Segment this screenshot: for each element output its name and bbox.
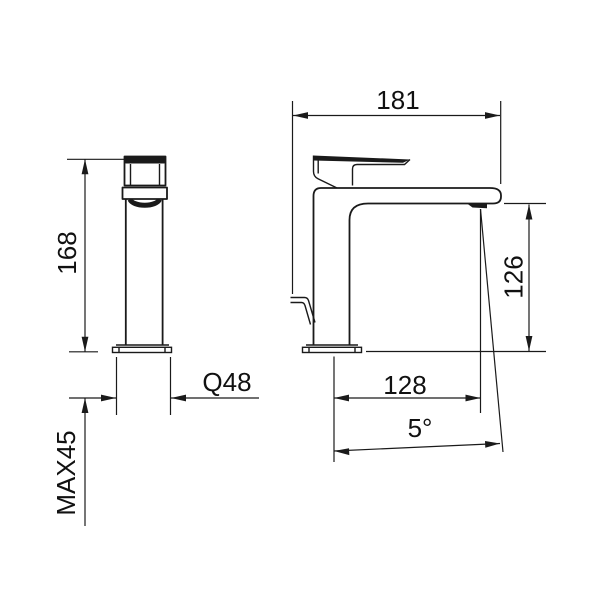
dimension-front-height: 168 <box>52 159 126 351</box>
spray-angle-label: 5° <box>408 413 433 443</box>
height-arrow-up <box>82 159 89 174</box>
height-arrow-down <box>82 337 89 352</box>
front-handle-inner-edges <box>131 164 160 186</box>
side-popup-rod <box>291 298 316 325</box>
spout-height-arrow-up <box>526 205 533 220</box>
faucet-dimension-drawing: 168 Q48 MAX45 181 126 128 <box>0 0 600 600</box>
side-elevation-view <box>291 156 547 353</box>
dimension-spout-height: 126 <box>499 204 547 352</box>
front-body-column <box>126 199 163 345</box>
side-handle-underside <box>353 160 411 186</box>
front-spout-mouth-arc <box>130 200 160 206</box>
front-elevation-view <box>113 156 172 353</box>
overall-depth-label: 181 <box>376 85 419 115</box>
side-base-flange-caps <box>309 347 355 352</box>
spout-reach-arrow-left <box>334 395 349 402</box>
depth-dim-lines <box>293 101 501 294</box>
front-spout-band <box>123 188 168 200</box>
max-thickness-arrow-up <box>82 398 89 413</box>
dimension-spray-angle: 5° <box>334 209 503 455</box>
dimension-base-diameter: Q48 <box>69 357 259 415</box>
spout-reach-label: 128 <box>383 370 426 400</box>
side-base-flange <box>303 347 362 352</box>
side-aerator-tip <box>467 204 487 209</box>
depth-arrow-right <box>485 112 500 119</box>
spout-height-label: 126 <box>499 255 529 298</box>
diameter-arrow-left <box>171 395 186 402</box>
dimension-overall-depth: 181 <box>293 85 501 294</box>
max-thickness-label: MAX45 <box>51 430 81 515</box>
technical-drawing-canvas: 168 Q48 MAX45 181 126 128 <box>0 0 600 600</box>
spray-angle-arrow-right <box>485 441 500 448</box>
depth-arrow-left <box>293 112 308 119</box>
spray-angle-arrow-left <box>334 448 349 455</box>
front-base-flange-caps <box>119 347 165 352</box>
base-diameter-label: Q48 <box>202 367 251 397</box>
spray-angle-slant-line <box>481 209 504 452</box>
dimension-max-thickness: MAX45 <box>51 398 88 526</box>
side-handle-lever <box>313 156 410 163</box>
spout-reach-arrow-right <box>466 395 481 402</box>
side-body-outline <box>314 188 502 345</box>
front-height-label: 168 <box>52 231 82 274</box>
spout-height-arrow-down <box>526 336 533 351</box>
front-base-flange <box>113 347 172 352</box>
diameter-arrow-right <box>101 395 116 402</box>
spray-angle-dim-line <box>334 444 500 452</box>
